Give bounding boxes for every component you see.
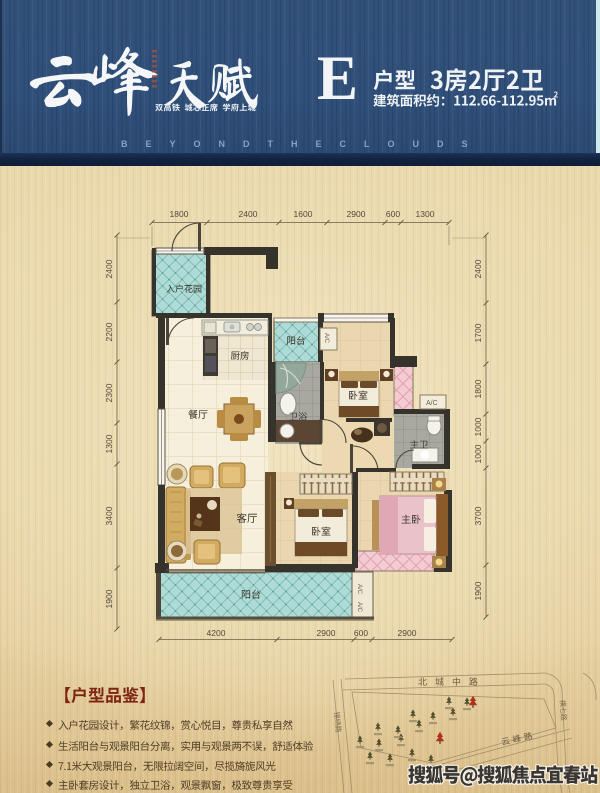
svg-text:2200: 2200 (104, 322, 114, 341)
svg-text:1700: 1700 (473, 323, 483, 342)
svg-text:A/C: A/C (323, 333, 329, 344)
svg-text:A/C: A/C (356, 602, 362, 613)
svg-text:600: 600 (354, 628, 368, 638)
svg-text:600: 600 (386, 209, 400, 219)
svg-text:1300: 1300 (104, 434, 114, 453)
svg-text:1900: 1900 (473, 581, 483, 600)
svg-text:1000: 1000 (473, 444, 483, 463)
svg-text:A/C: A/C (356, 584, 362, 595)
svg-text:1300: 1300 (416, 209, 435, 219)
svg-text:2400: 2400 (239, 209, 258, 219)
svg-text:1000: 1000 (473, 417, 483, 436)
svg-text:3700: 3700 (473, 506, 483, 525)
svg-text:2400: 2400 (104, 259, 114, 278)
svg-text:2900: 2900 (398, 628, 417, 638)
svg-text:3400: 3400 (104, 506, 114, 525)
svg-text:1600: 1600 (294, 209, 313, 219)
svg-text:2900: 2900 (347, 209, 366, 219)
svg-text:1800: 1800 (473, 379, 483, 398)
svg-text:A/C: A/C (426, 400, 438, 407)
svg-text:2900: 2900 (317, 628, 336, 638)
svg-text:1900: 1900 (104, 589, 114, 608)
svg-text:2300: 2300 (104, 383, 114, 402)
svg-text:4200: 4200 (207, 628, 226, 638)
svg-text:2400: 2400 (473, 259, 483, 278)
svg-text:1800: 1800 (170, 209, 189, 219)
